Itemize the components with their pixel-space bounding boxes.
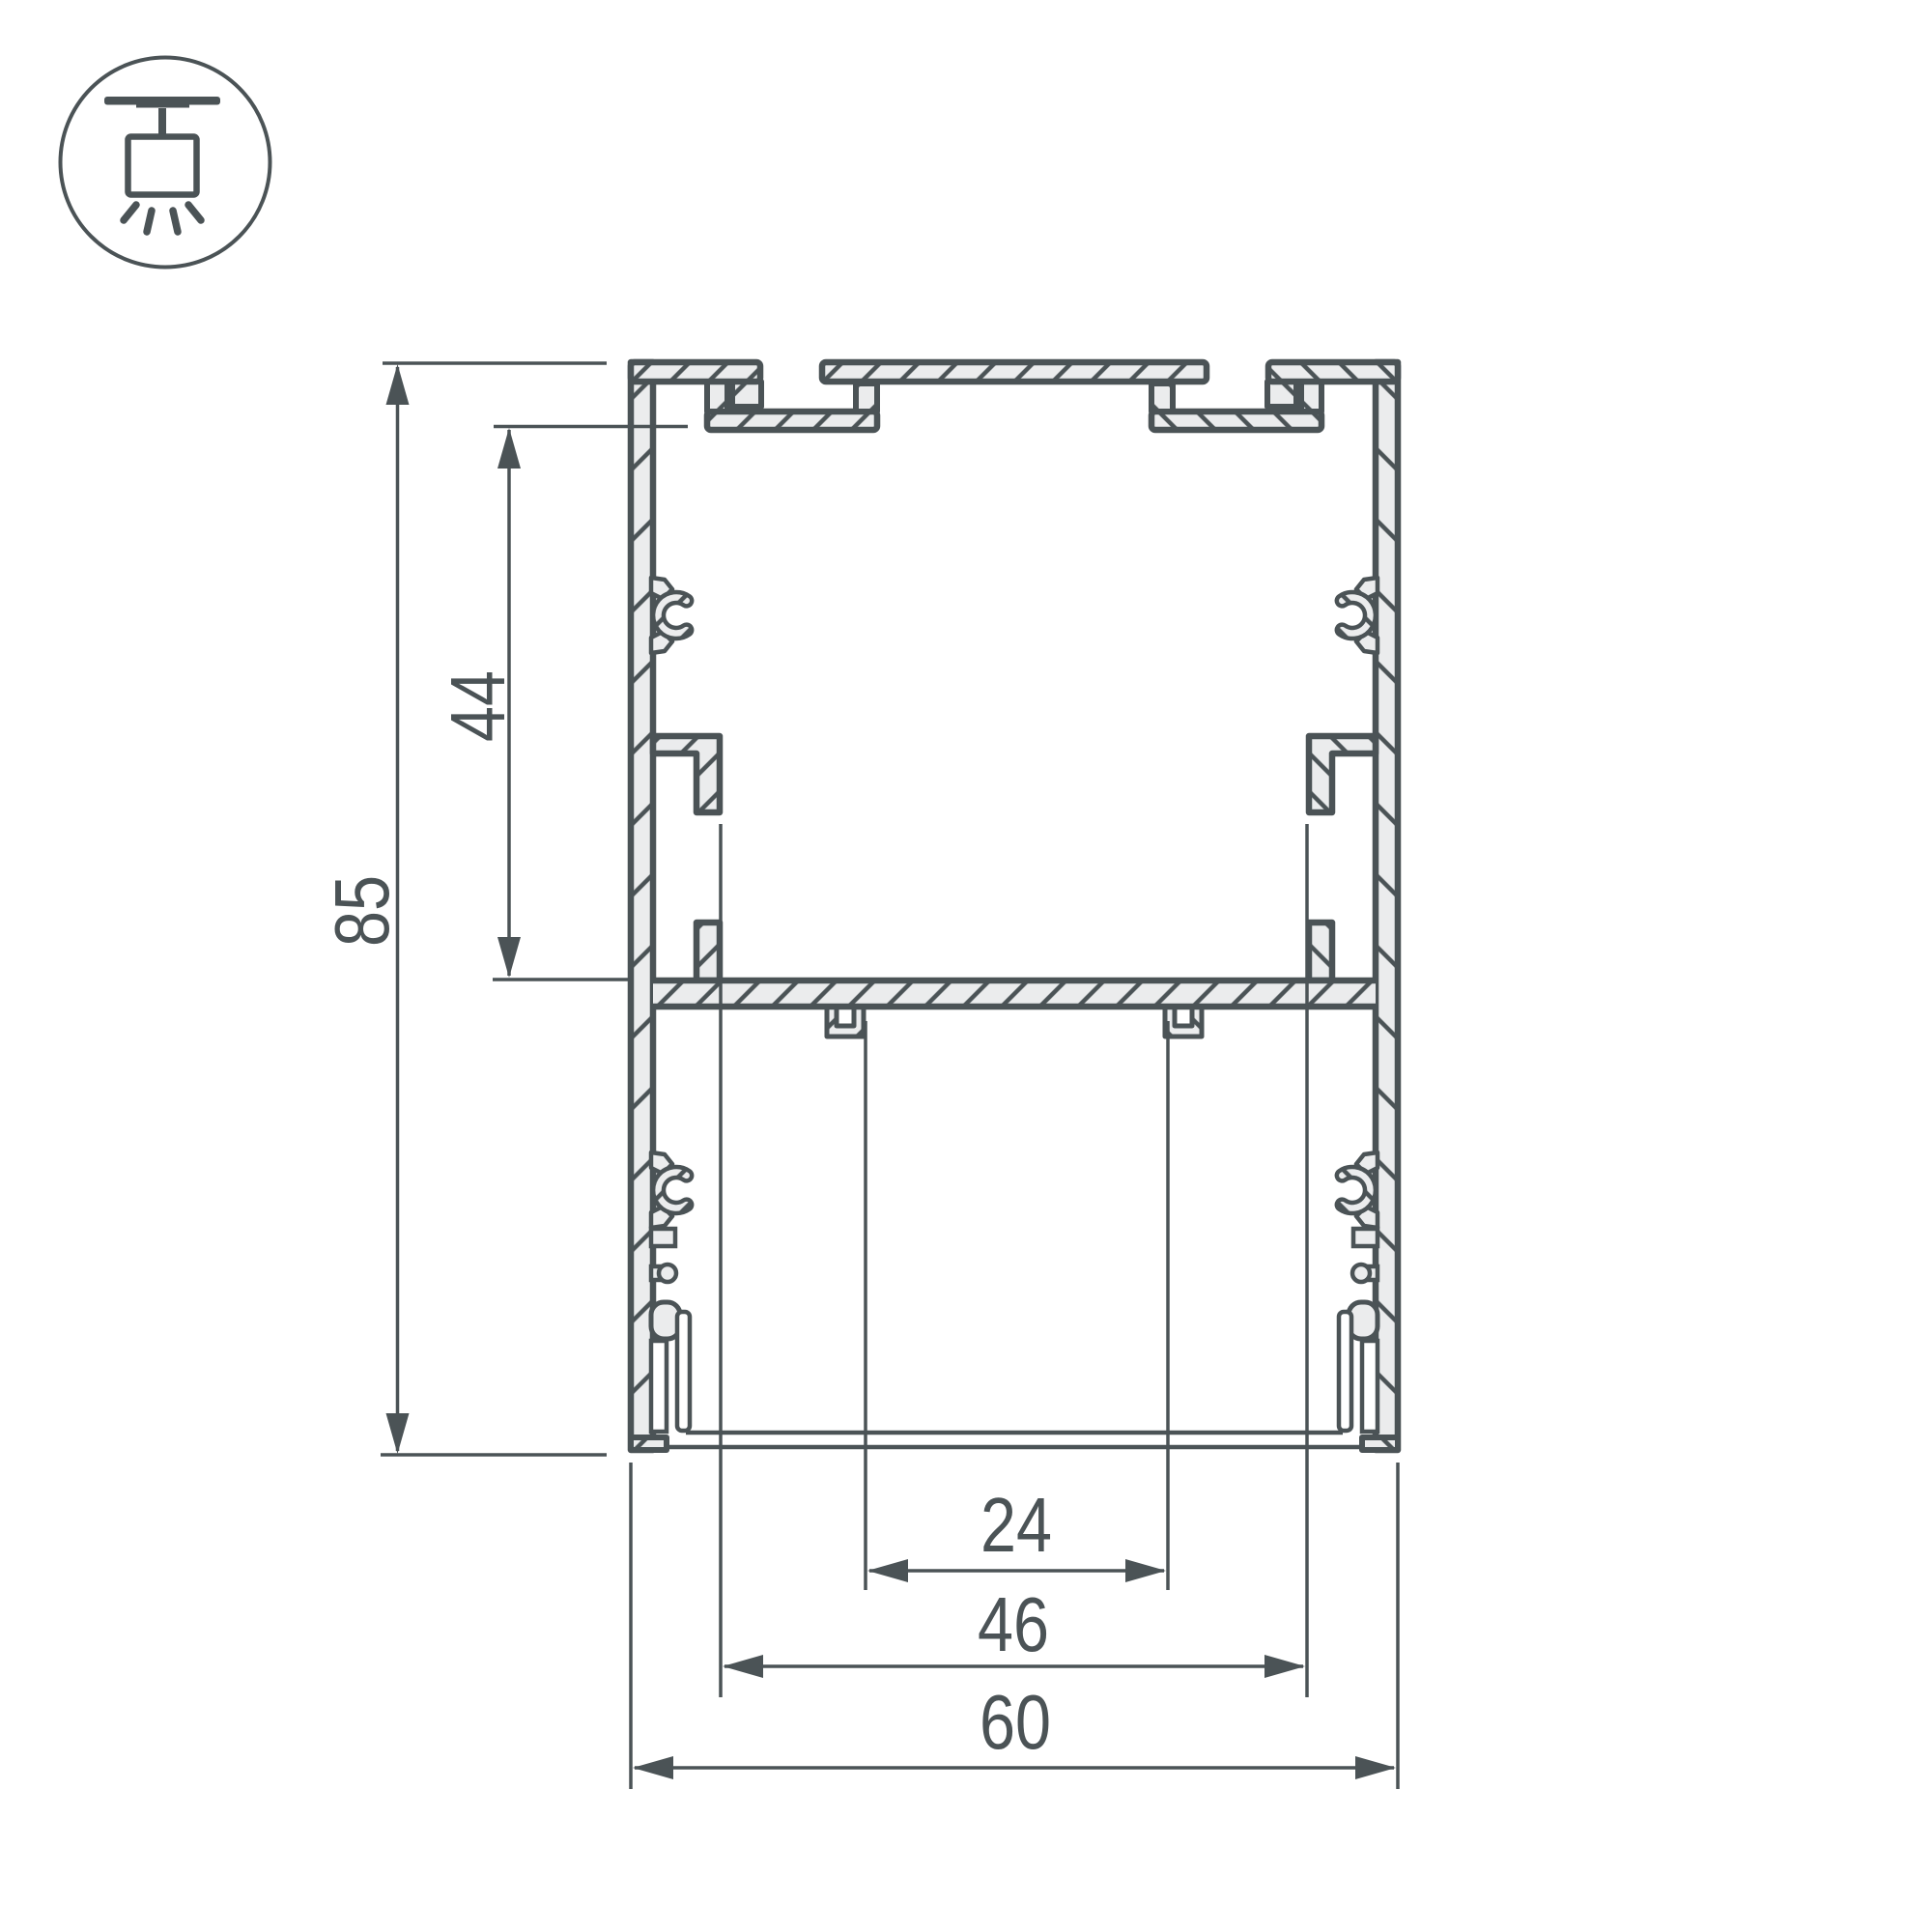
svg-text:46: 46 bbox=[978, 1581, 1049, 1667]
svg-text:24: 24 bbox=[980, 1482, 1052, 1568]
svg-text:60: 60 bbox=[980, 1679, 1051, 1765]
svg-text:44: 44 bbox=[435, 670, 521, 742]
svg-text:85: 85 bbox=[319, 875, 405, 947]
